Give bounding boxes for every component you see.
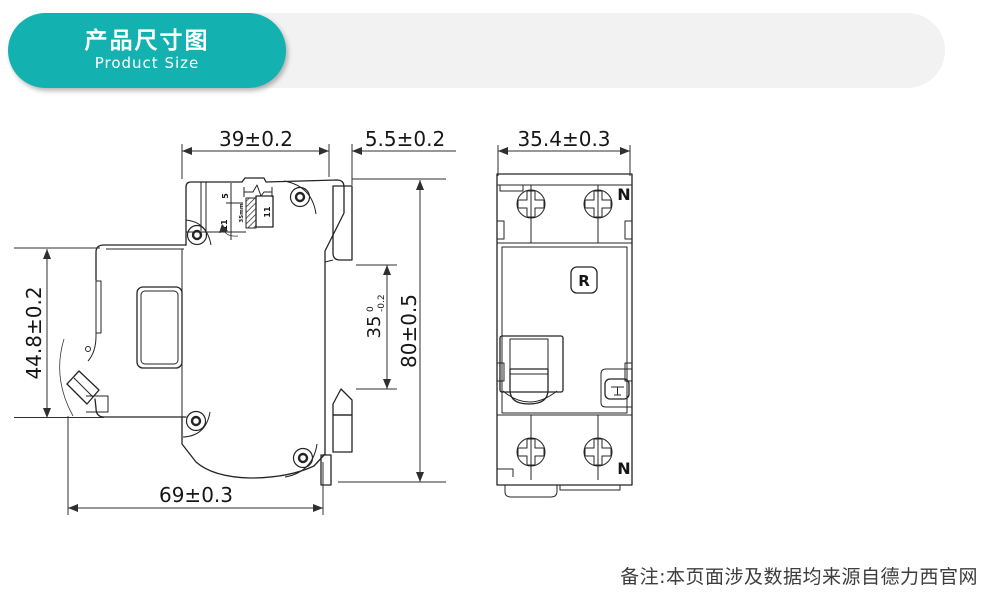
boss-screw-bottom-left: [187, 412, 206, 431]
rail-size-note: 35mm: [239, 203, 245, 222]
neutral-label-top: N: [617, 185, 630, 204]
dim-front-width: 35.4±0.3: [517, 127, 610, 151]
neutral-label-bottom: N: [617, 459, 630, 478]
front-center-panel: [502, 247, 627, 413]
front-view: N N R: [497, 127, 632, 497]
reset-button: R: [571, 267, 597, 293]
label-window: [137, 287, 182, 368]
inset-label-right: 11: [263, 206, 272, 218]
dim-total-depth: 69±0.3: [159, 483, 233, 507]
page: 产品尺寸图 Product Size: [0, 0, 990, 606]
reset-button-label: R: [578, 272, 590, 290]
dim-rail-depth: 5.5±0.2: [365, 127, 445, 151]
dim-rail-span-upper: 0: [366, 306, 376, 312]
lever-pivot-dot: [86, 347, 91, 352]
lever-travel-arc: [60, 339, 73, 416]
dimensions-front: 35.4±0.3: [498, 127, 630, 176]
dimensions-side: 39±0.2 5.5±0.2 44.8±0.2 35 0: [14, 127, 456, 515]
dim-front-height: 44.8±0.2: [22, 286, 46, 379]
dim-top-width: 39±0.2: [219, 127, 293, 151]
test-icon: [611, 387, 624, 395]
boss-screw-bottom-right: [294, 449, 313, 468]
side-view: 35mm 11 5 11: [60, 178, 352, 485]
dim-rail-span-lower: -0.2: [377, 294, 387, 312]
boss-screw-top-right: [291, 188, 310, 207]
front-body-outline: [497, 174, 632, 485]
dimension-drawing: 35mm 11 5 11: [0, 0, 990, 606]
dim-rail-span-value: 35: [364, 316, 385, 339]
side-front-face: [96, 245, 186, 280]
front-toggle-handle: [500, 336, 563, 404]
dim-total-height: 80±0.5: [397, 294, 421, 368]
source-note: 备注:本页面涉及数据均来源自德力西官网: [620, 562, 978, 589]
side-toggle-lever: [67, 371, 108, 412]
inset-label-top: 5: [221, 193, 230, 199]
rail-detail-inset: 35mm 11 5 11: [219, 183, 273, 240]
